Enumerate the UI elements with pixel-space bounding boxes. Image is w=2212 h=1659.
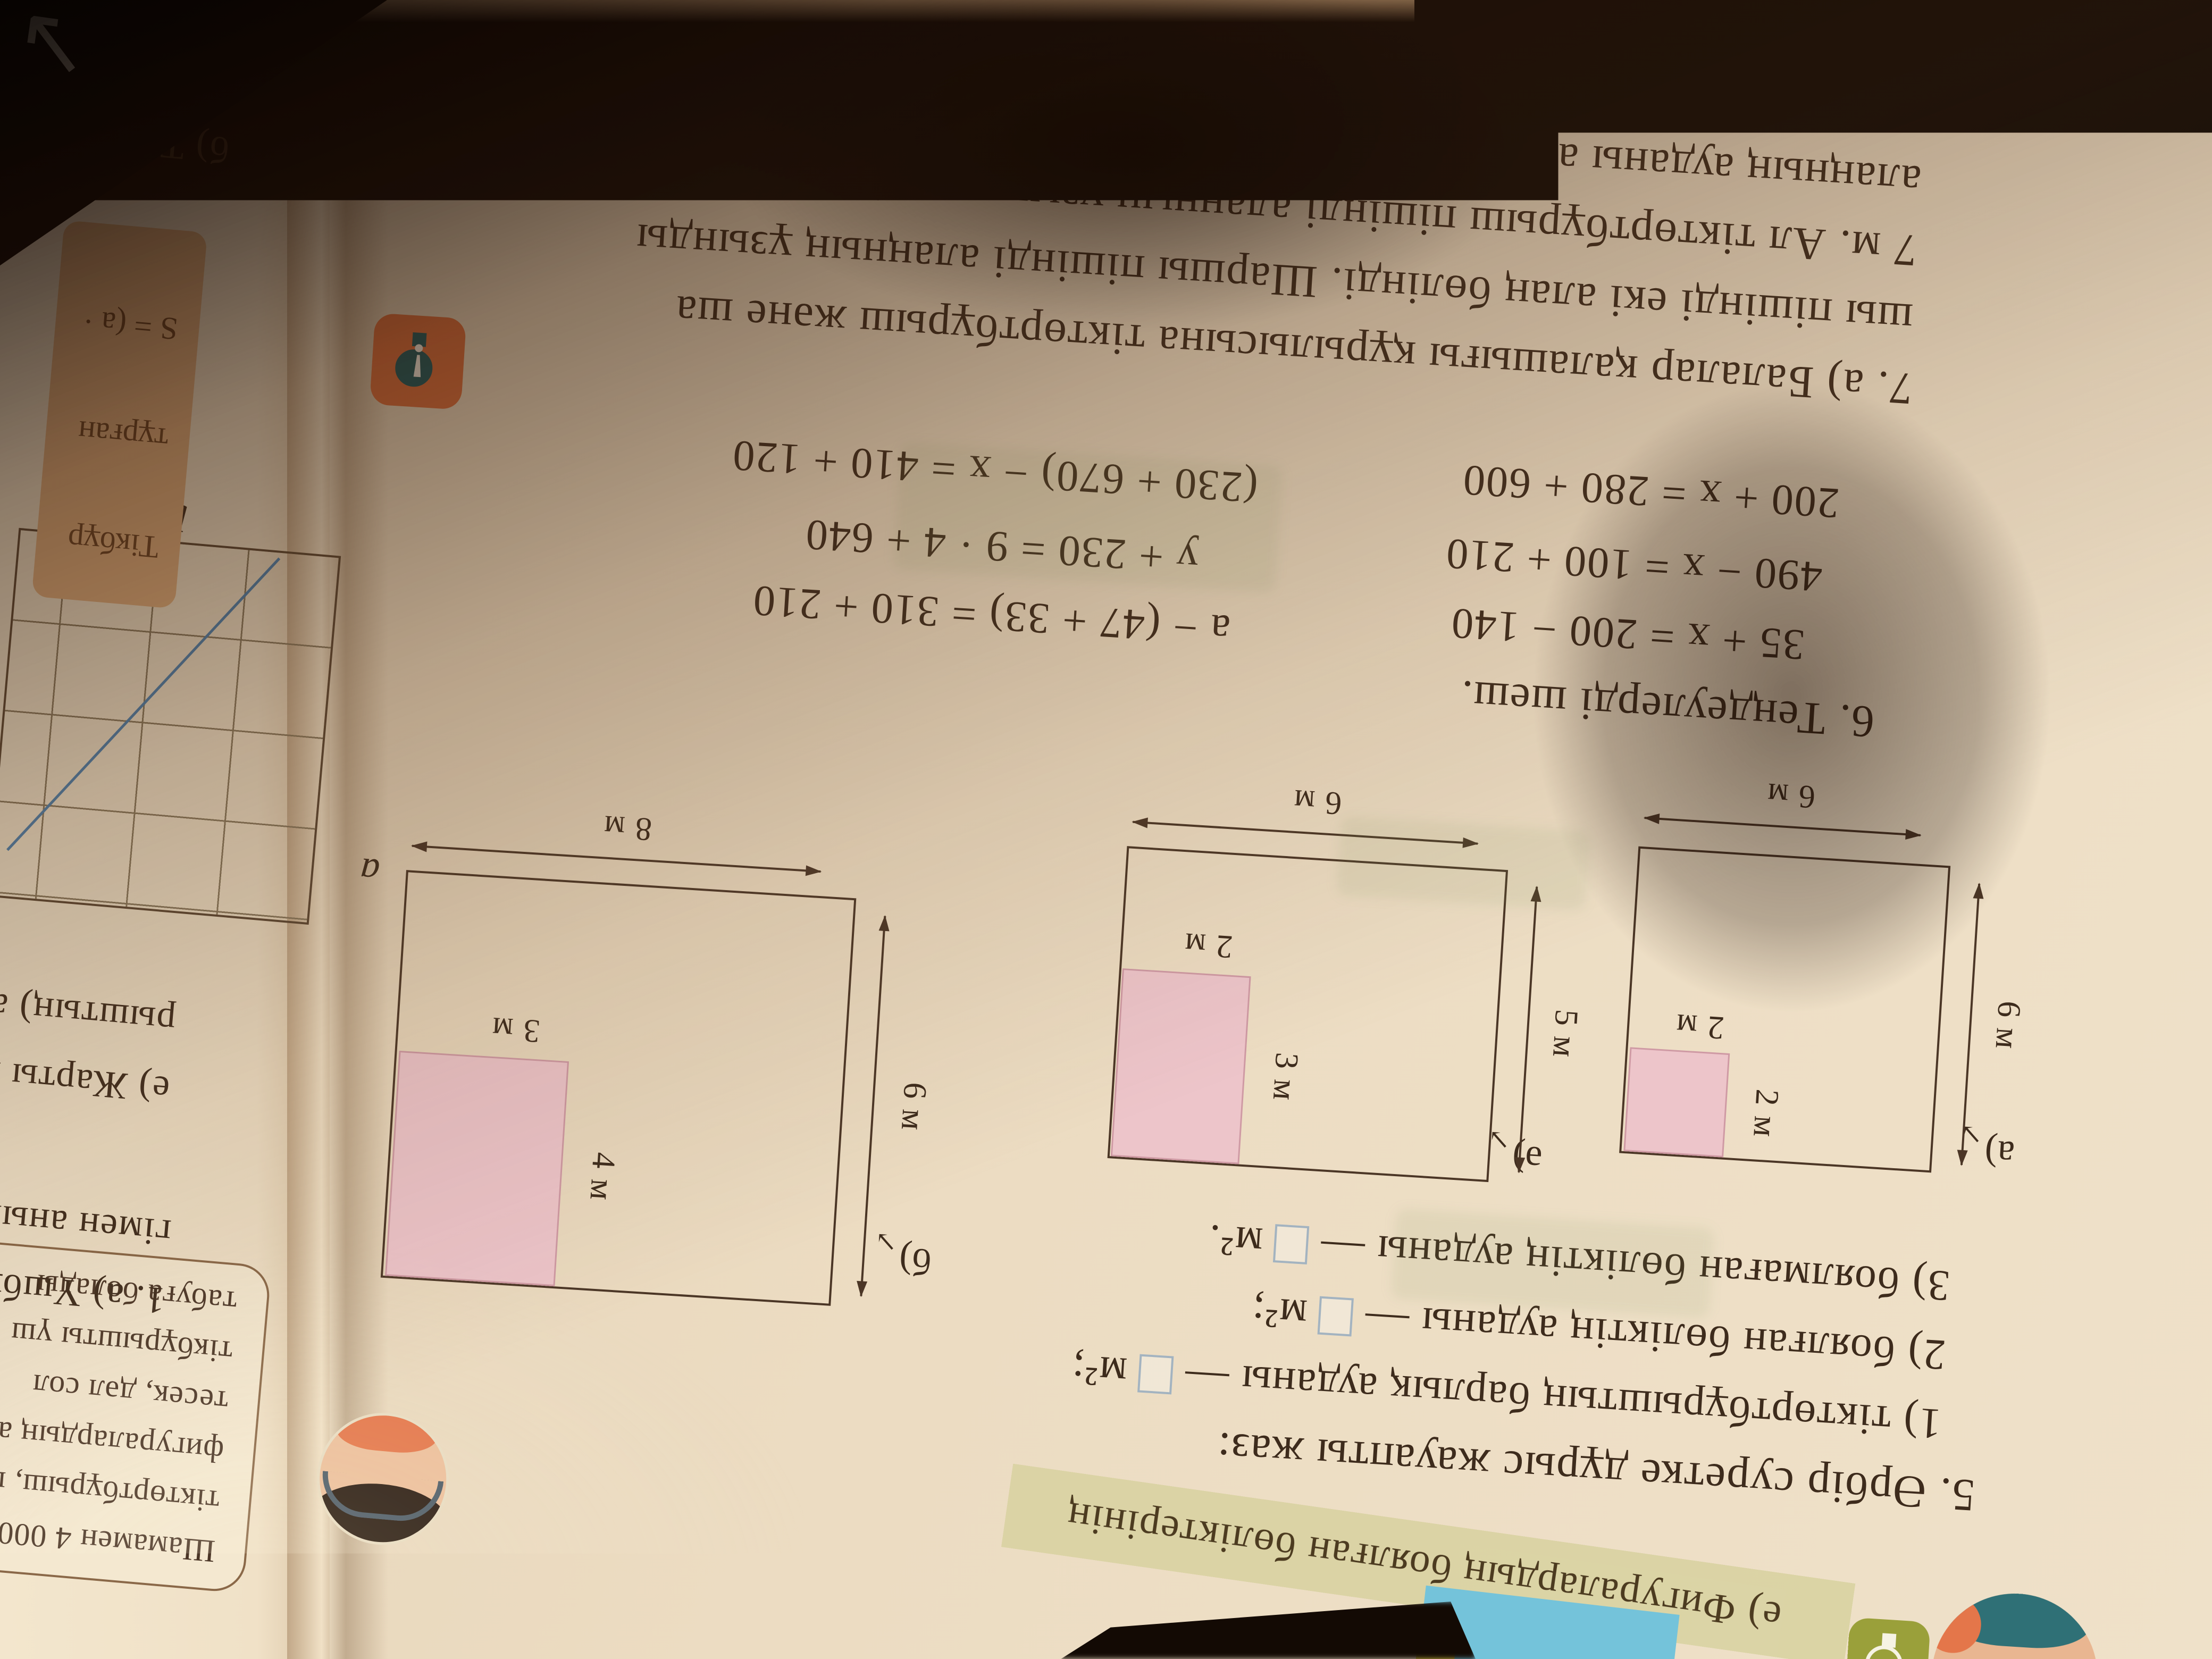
bubble-line: фигуралардың а	[0, 1414, 225, 1470]
girl-avatar	[312, 1407, 455, 1551]
book-spread: е) Фигуралардың боялған бөліктерінің 5. …	[0, 0, 2212, 1659]
white-arrow-icon: ↘	[8, 0, 98, 105]
bubble-line: тесек, дәл сол	[31, 1367, 230, 1420]
formula-box-line: тұрған	[77, 413, 170, 458]
page-edge-highlight	[351, 0, 1414, 22]
next-fragment-line: рыштың) ау	[0, 983, 177, 1044]
next-fragment-line: е) Жарты ш	[0, 1051, 171, 1112]
bubble-line: тіктөртбұрыш, ш	[0, 1462, 221, 1520]
formula-box-line: S = (a ·	[81, 303, 179, 347]
photo-of-textbook: е) Фигуралардың боялған бөліктерінің 5. …	[0, 0, 2212, 1659]
bubble-line: тікбұрышты үш	[9, 1314, 234, 1370]
girl-shirt	[335, 1407, 440, 1455]
next-page-content: Шамамен 4 000 ж тіктөртбұрыш, ш фигурала…	[0, 0, 2212, 1659]
bubble-line: Шамамен 4 000 ж	[0, 1511, 216, 1570]
formula-box-line: Тікбұр	[66, 521, 160, 566]
grid-side-label: а	[357, 849, 381, 894]
